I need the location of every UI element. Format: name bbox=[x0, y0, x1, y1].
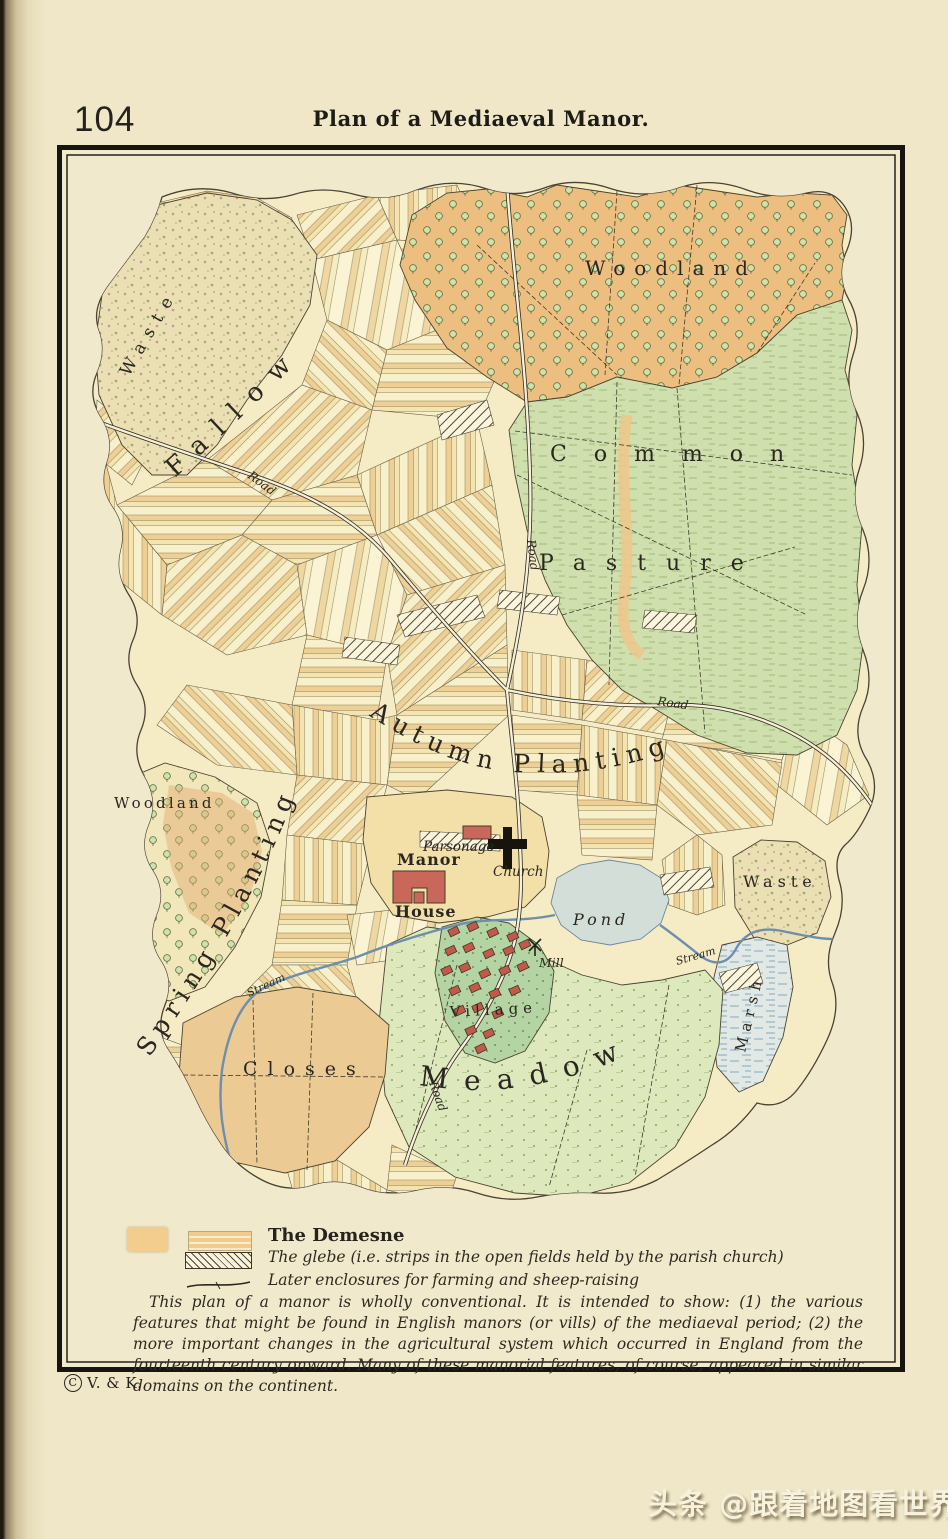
legend-swatch-demesne-strips bbox=[188, 1231, 252, 1251]
label-parsonage: Parsonage bbox=[422, 839, 494, 855]
copyright: C V. & K. bbox=[64, 1374, 142, 1392]
parsonage-building bbox=[463, 826, 491, 839]
copyright-text: V. & K. bbox=[87, 1374, 142, 1392]
copyright-symbol-icon: C bbox=[64, 1374, 82, 1392]
label-waste-e: Waste bbox=[743, 872, 817, 891]
label-pasture: Pasture bbox=[539, 551, 764, 576]
book-gutter-shadow bbox=[0, 0, 46, 1539]
legend-glebe-label: The glebe (i.e. strips in the open field… bbox=[268, 1248, 868, 1266]
label-woodland-ne: Woodland bbox=[585, 256, 757, 280]
scanned-atlas-page: { "page": { "number": "104", "title": "P… bbox=[0, 0, 948, 1539]
legend-swatch-glebe bbox=[185, 1252, 252, 1269]
enclosure-line-icon bbox=[186, 1279, 252, 1291]
label-woodland-w: Woodland bbox=[114, 794, 215, 812]
label-common: Common bbox=[550, 442, 811, 467]
manor-house-building bbox=[393, 871, 445, 903]
legend-swatch-demesne-solid bbox=[127, 1227, 168, 1252]
label-mill: Mill bbox=[538, 955, 564, 970]
label-closes: Closes bbox=[243, 1058, 366, 1080]
label-pond: Pond bbox=[572, 910, 629, 929]
map-content bbox=[79, 183, 877, 1213]
legend-demesne-label: The Demesne bbox=[268, 1225, 404, 1246]
label-church: Church bbox=[493, 864, 543, 880]
watermark: 头条 @跟着地图看世界 bbox=[648, 1481, 948, 1523]
legend-note: This plan of a manor is wholly conventio… bbox=[133, 1292, 863, 1397]
manor-map: Waste Fallow Woodland Common Pasture Aut… bbox=[57, 145, 905, 1372]
label-house: House bbox=[395, 902, 457, 921]
legend-enclosures-label: Later enclosures for farming and sheep-r… bbox=[268, 1271, 868, 1289]
page-title: Plan of a Mediaeval Manor. bbox=[57, 106, 905, 131]
